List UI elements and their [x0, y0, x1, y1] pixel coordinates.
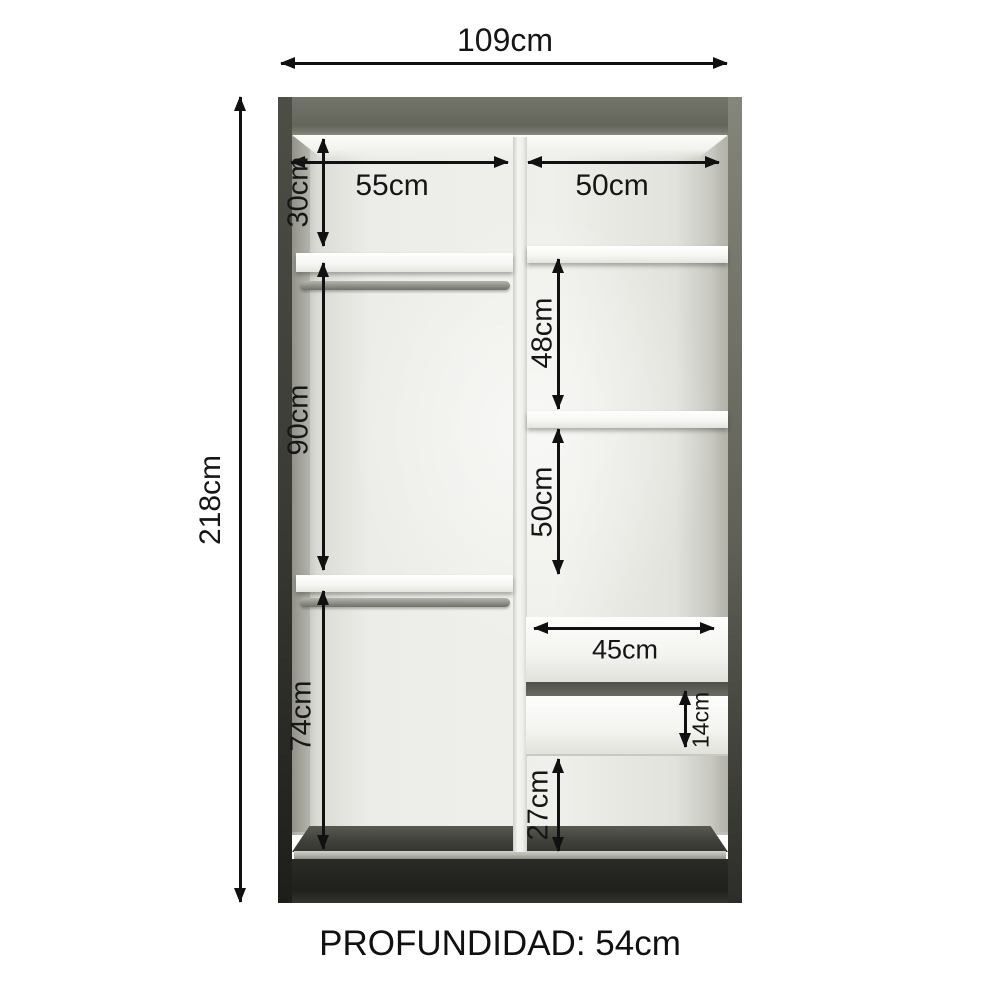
left-hanging-height-arrow [322, 263, 325, 570]
right-section-width-arrow [528, 161, 719, 164]
total-width-label: 109cm [457, 24, 553, 56]
bottom-right-height-arrow [557, 759, 560, 851]
right-section-width-label: 50cm [575, 171, 648, 201]
wardrobe-top-panel [278, 97, 742, 137]
drawer-front-height-label: 14cm [690, 692, 713, 748]
right-middle-height-label: 50cm [529, 467, 558, 538]
sliding-door-track [294, 851, 726, 859]
bottom-right-height-label: 27cm [525, 770, 554, 841]
wardrobe-floor [292, 826, 728, 852]
lower-hanging-rod [300, 598, 510, 607]
wardrobe-center-divider [513, 137, 527, 852]
right-middle-shelf [527, 411, 728, 428]
total-height-arrow [239, 97, 242, 902]
wardrobe-top-bevel [292, 135, 728, 159]
drawer-width-label: 45cm [592, 637, 658, 664]
left-section-width-label: 55cm [355, 171, 428, 201]
upper-hanging-rod [300, 281, 510, 290]
total-height-label: 218cm [196, 455, 226, 545]
drawer-width-arrow [534, 627, 714, 630]
top-shelf-height-label: 30cm [285, 157, 314, 228]
right-upper-height-label: 48cm [529, 298, 558, 369]
depth-label: PROFUNDIDAD: 54cm [319, 924, 681, 964]
left-hanging-height-label: 90cm [285, 385, 314, 456]
left-bottom-height-label: 74cm [288, 681, 317, 752]
wardrobe-plinth [286, 859, 740, 903]
top-shelf-height-arrow [322, 139, 325, 246]
wardrobe-dimension-diagram: 109cm 218cm 55cm 50cm 30cm 90cm 74cm 48c… [0, 0, 1000, 1000]
wardrobe-right-side-panel [728, 97, 742, 903]
left-bottom-height-arrow [322, 591, 325, 849]
total-width-arrow [281, 62, 727, 65]
